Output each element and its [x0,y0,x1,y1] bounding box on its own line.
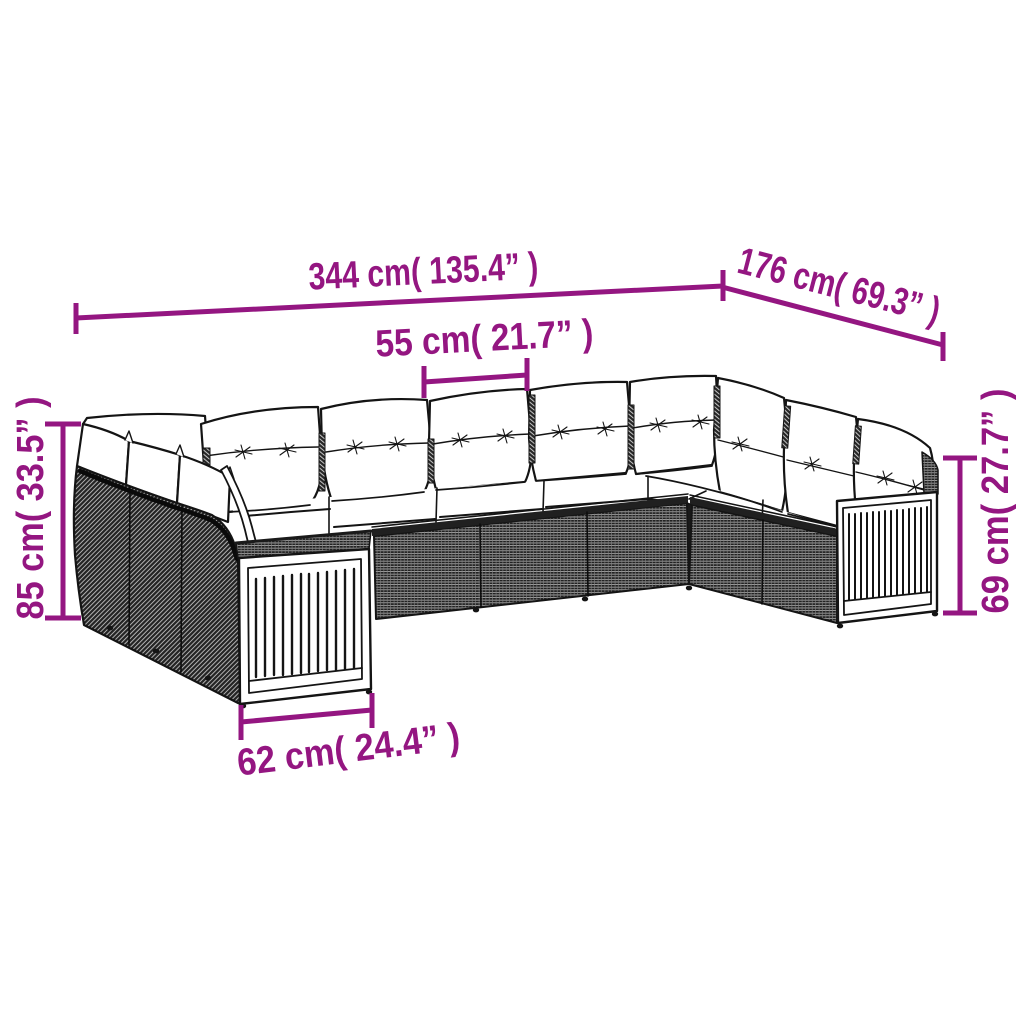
svg-text:69 cm( 27.7” ): 69 cm( 27.7” ) [975,389,1017,614]
svg-text:85 cm( 33.5” ): 85 cm( 33.5” ) [10,397,52,620]
